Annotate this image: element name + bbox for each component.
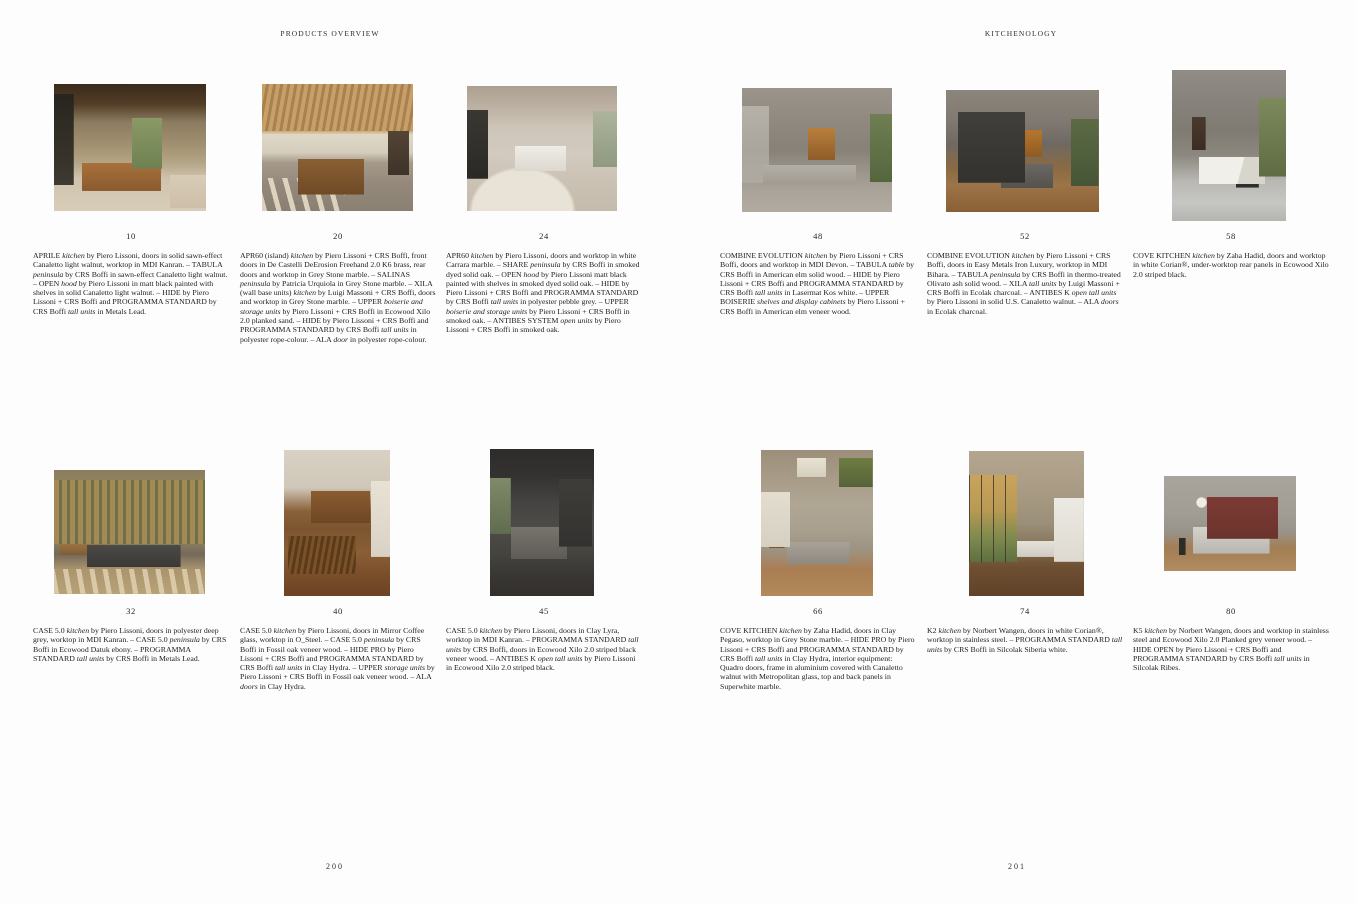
item-number: 52 [927, 231, 1123, 241]
product-photo-80 [1164, 476, 1296, 571]
item-number: 10 [33, 231, 229, 241]
item-caption: COMBINE EVOLUTION kitchen by Piero Lisso… [927, 251, 1123, 316]
item-caption: K2 kitchen by Norbert Wangen, doors in w… [927, 626, 1123, 654]
item-number: 24 [446, 231, 642, 241]
item-caption: COVE KITCHEN kitchen by Zaha Hadid, door… [1133, 251, 1329, 279]
catalog-item-10: 10 APRILE kitchen by Piero Lissoni, door… [33, 231, 229, 316]
product-photo-45 [490, 449, 594, 596]
product-photo-40 [284, 450, 390, 596]
item-caption: COVE KITCHEN kitchen by Zaha Hadid, door… [720, 626, 916, 691]
item-caption: APRILE kitchen by Piero Lissoni, doors i… [33, 251, 229, 316]
running-header-left: PRODUCTS OVERVIEW [220, 29, 440, 38]
catalog-item-40: 40 CASE 5.0 kitchen by Piero Lissoni, do… [240, 606, 436, 691]
product-photo-66 [761, 450, 873, 596]
item-number: 80 [1133, 606, 1329, 616]
catalog-item-24: 24 APR60 kitchen by Piero Lissoni, doors… [446, 231, 642, 335]
product-photo-10 [54, 84, 206, 211]
item-number: 48 [720, 231, 916, 241]
catalog-spread: PRODUCTS OVERVIEW KITCHENOLOGY 10 APRILE… [0, 0, 1356, 904]
item-number: 45 [446, 606, 642, 616]
product-photo-24 [467, 86, 617, 211]
catalog-item-20: 20 APR60 (island) kitchen by Piero Lisso… [240, 231, 436, 344]
catalog-item-80: 80 K5 kitchen by Norbert Wangen, doors a… [1133, 606, 1329, 672]
catalog-item-48: 48 COMBINE EVOLUTION kitchen by Piero Li… [720, 231, 916, 316]
catalog-item-45: 45 CASE 5.0 kitchen by Piero Lissoni, do… [446, 606, 642, 672]
product-photo-74 [969, 451, 1084, 596]
product-photo-20 [262, 84, 413, 211]
running-header-right: KITCHENOLOGY [911, 29, 1131, 38]
catalog-item-74: 74 K2 kitchen by Norbert Wangen, doors i… [927, 606, 1123, 654]
item-number: 74 [927, 606, 1123, 616]
item-caption: APR60 kitchen by Piero Lissoni, doors an… [446, 251, 642, 335]
item-caption: K5 kitchen by Norbert Wangen, doors and … [1133, 626, 1329, 672]
item-number: 32 [33, 606, 229, 616]
item-caption: CASE 5.0 kitchen by Piero Lissoni, doors… [446, 626, 642, 672]
catalog-item-32: 32 CASE 5.0 kitchen by Piero Lissoni, do… [33, 606, 229, 663]
item-caption: CASE 5.0 kitchen by Piero Lissoni, doors… [33, 626, 229, 663]
page-number-right: 201 [977, 862, 1057, 871]
item-caption: APR60 (island) kitchen by Piero Lissoni … [240, 251, 436, 344]
product-photo-48 [742, 88, 892, 212]
item-number: 20 [240, 231, 436, 241]
item-caption: CASE 5.0 kitchen by Piero Lissoni, doors… [240, 626, 436, 691]
page-number-left: 200 [295, 862, 375, 871]
catalog-item-52: 52 COMBINE EVOLUTION kitchen by Piero Li… [927, 231, 1123, 316]
item-caption: COMBINE EVOLUTION kitchen by Piero Lisso… [720, 251, 916, 316]
catalog-item-66: 66 COVE KITCHEN kitchen by Zaha Hadid, d… [720, 606, 916, 691]
product-photo-52 [946, 90, 1099, 212]
item-number: 40 [240, 606, 436, 616]
item-number: 58 [1133, 231, 1329, 241]
product-photo-58 [1172, 70, 1286, 221]
item-number: 66 [720, 606, 916, 616]
product-photo-32 [54, 470, 205, 594]
catalog-item-58: 58 COVE KITCHEN kitchen by Zaha Hadid, d… [1133, 231, 1329, 279]
